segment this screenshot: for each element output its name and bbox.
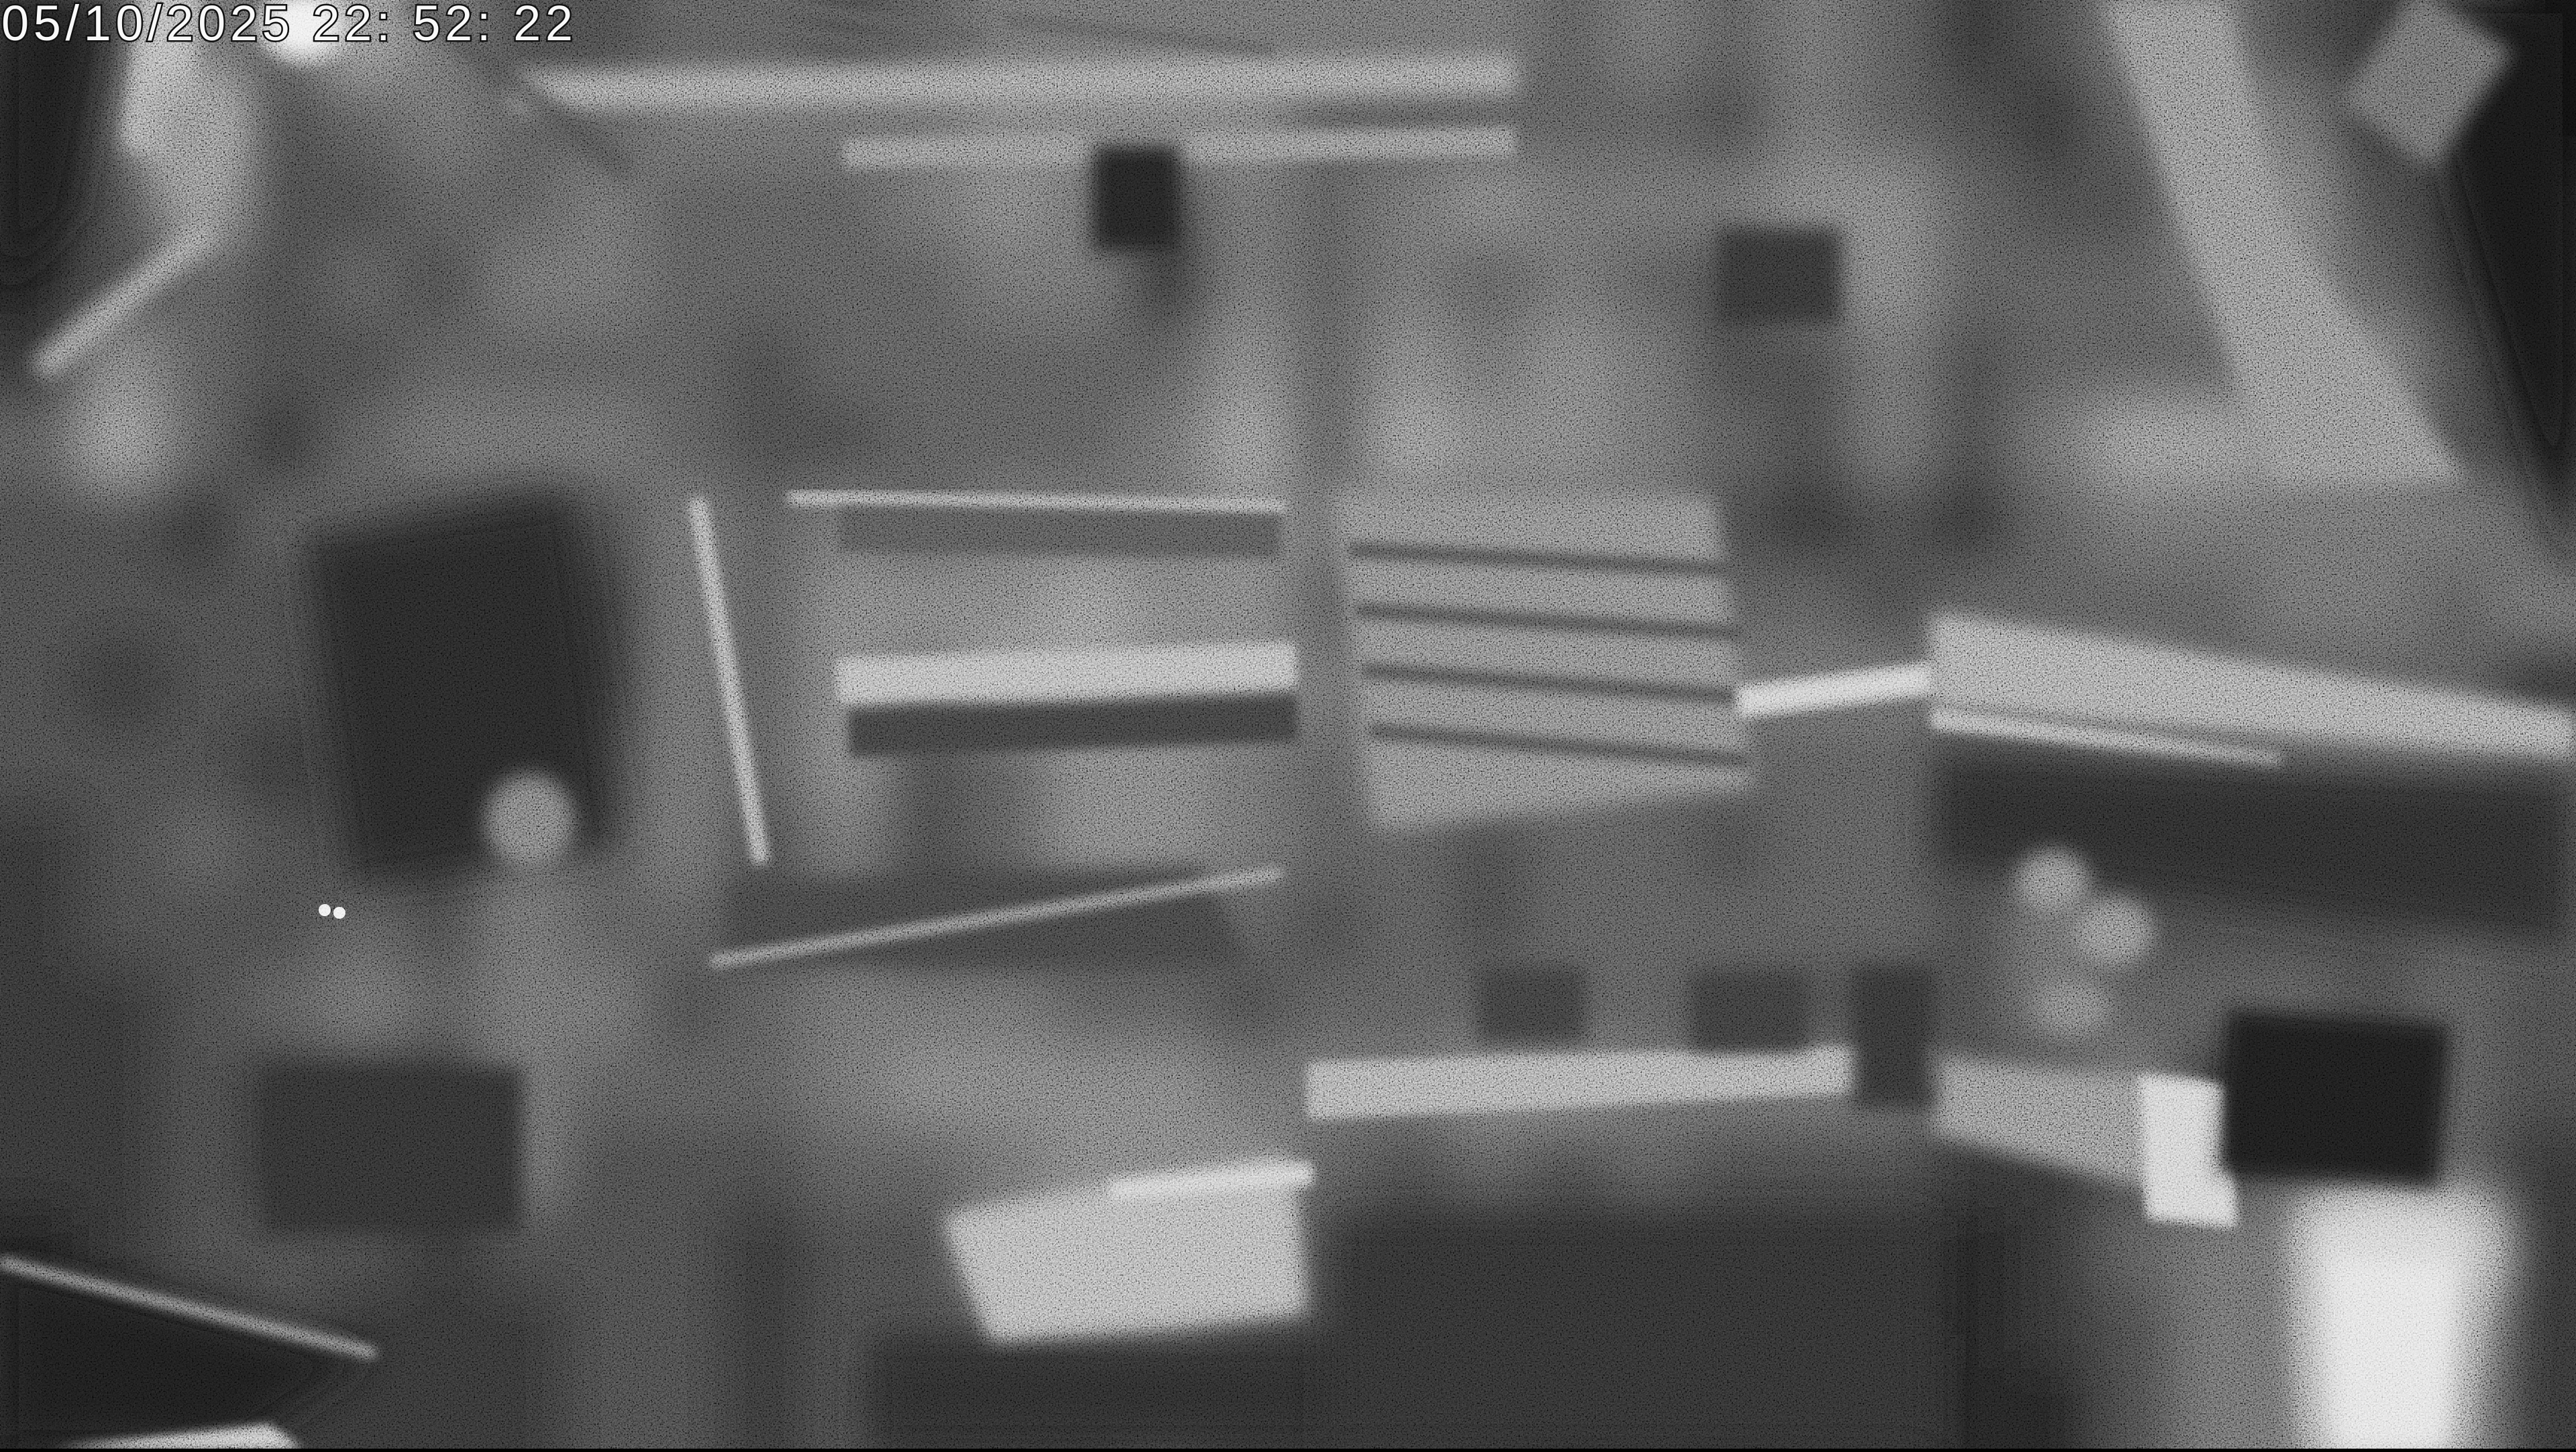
svg-text:05/10/2025 22: 52: 22: 05/10/2025 22: 52: 22 [1, 0, 578, 51]
